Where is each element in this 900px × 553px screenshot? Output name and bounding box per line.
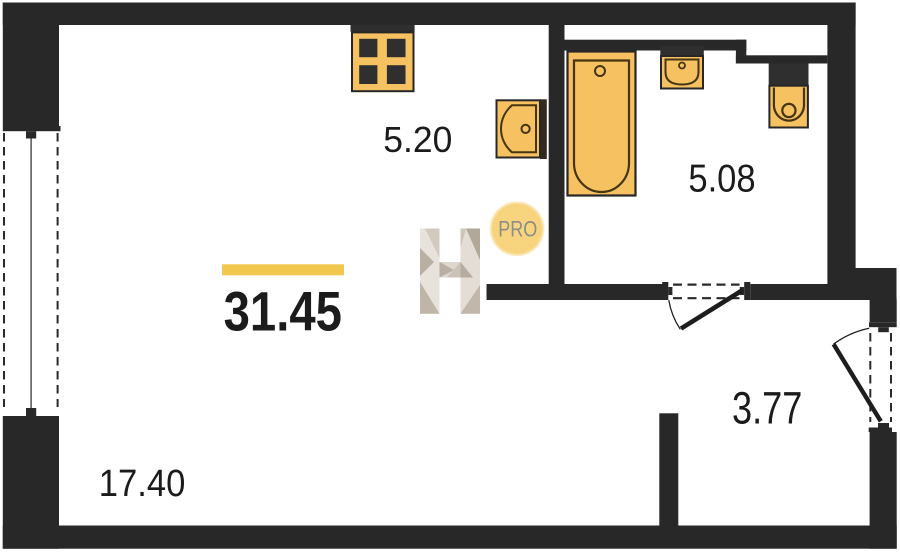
svg-text:31.45: 31.45	[224, 280, 342, 342]
svg-text:5.20: 5.20	[383, 119, 452, 160]
svg-text:17.40: 17.40	[99, 463, 186, 505]
svg-text:3.77: 3.77	[732, 382, 802, 433]
svg-text:5.08: 5.08	[688, 158, 755, 201]
svg-text:PRO: PRO	[498, 217, 537, 242]
